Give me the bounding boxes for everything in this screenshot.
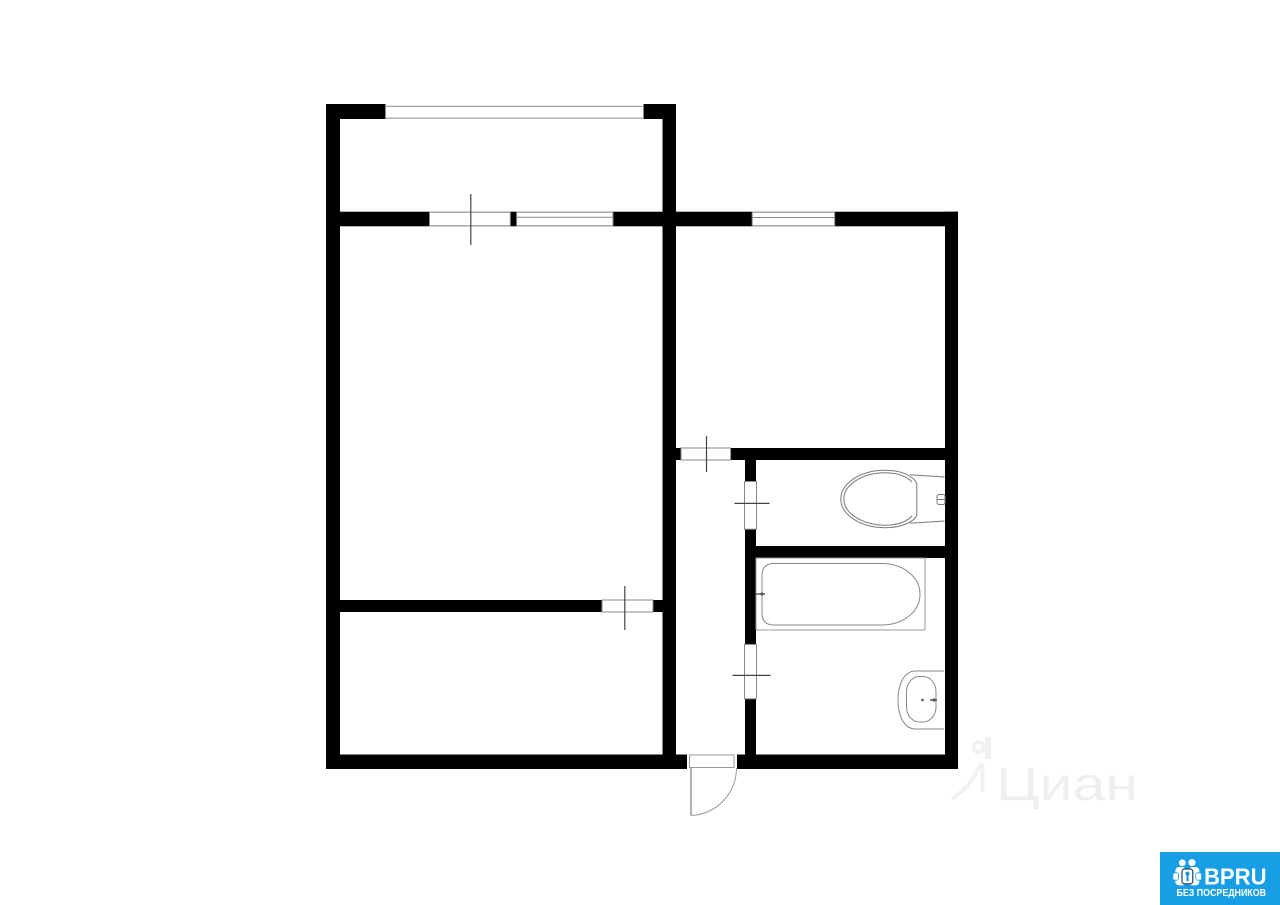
svg-text:Циан: Циан — [996, 758, 1138, 810]
svg-text:БЕЗ ПОСРЕДНИКОВ: БЕЗ ПОСРЕДНИКОВ — [1177, 888, 1267, 899]
svg-text:BPRU: BPRU — [1204, 864, 1267, 890]
